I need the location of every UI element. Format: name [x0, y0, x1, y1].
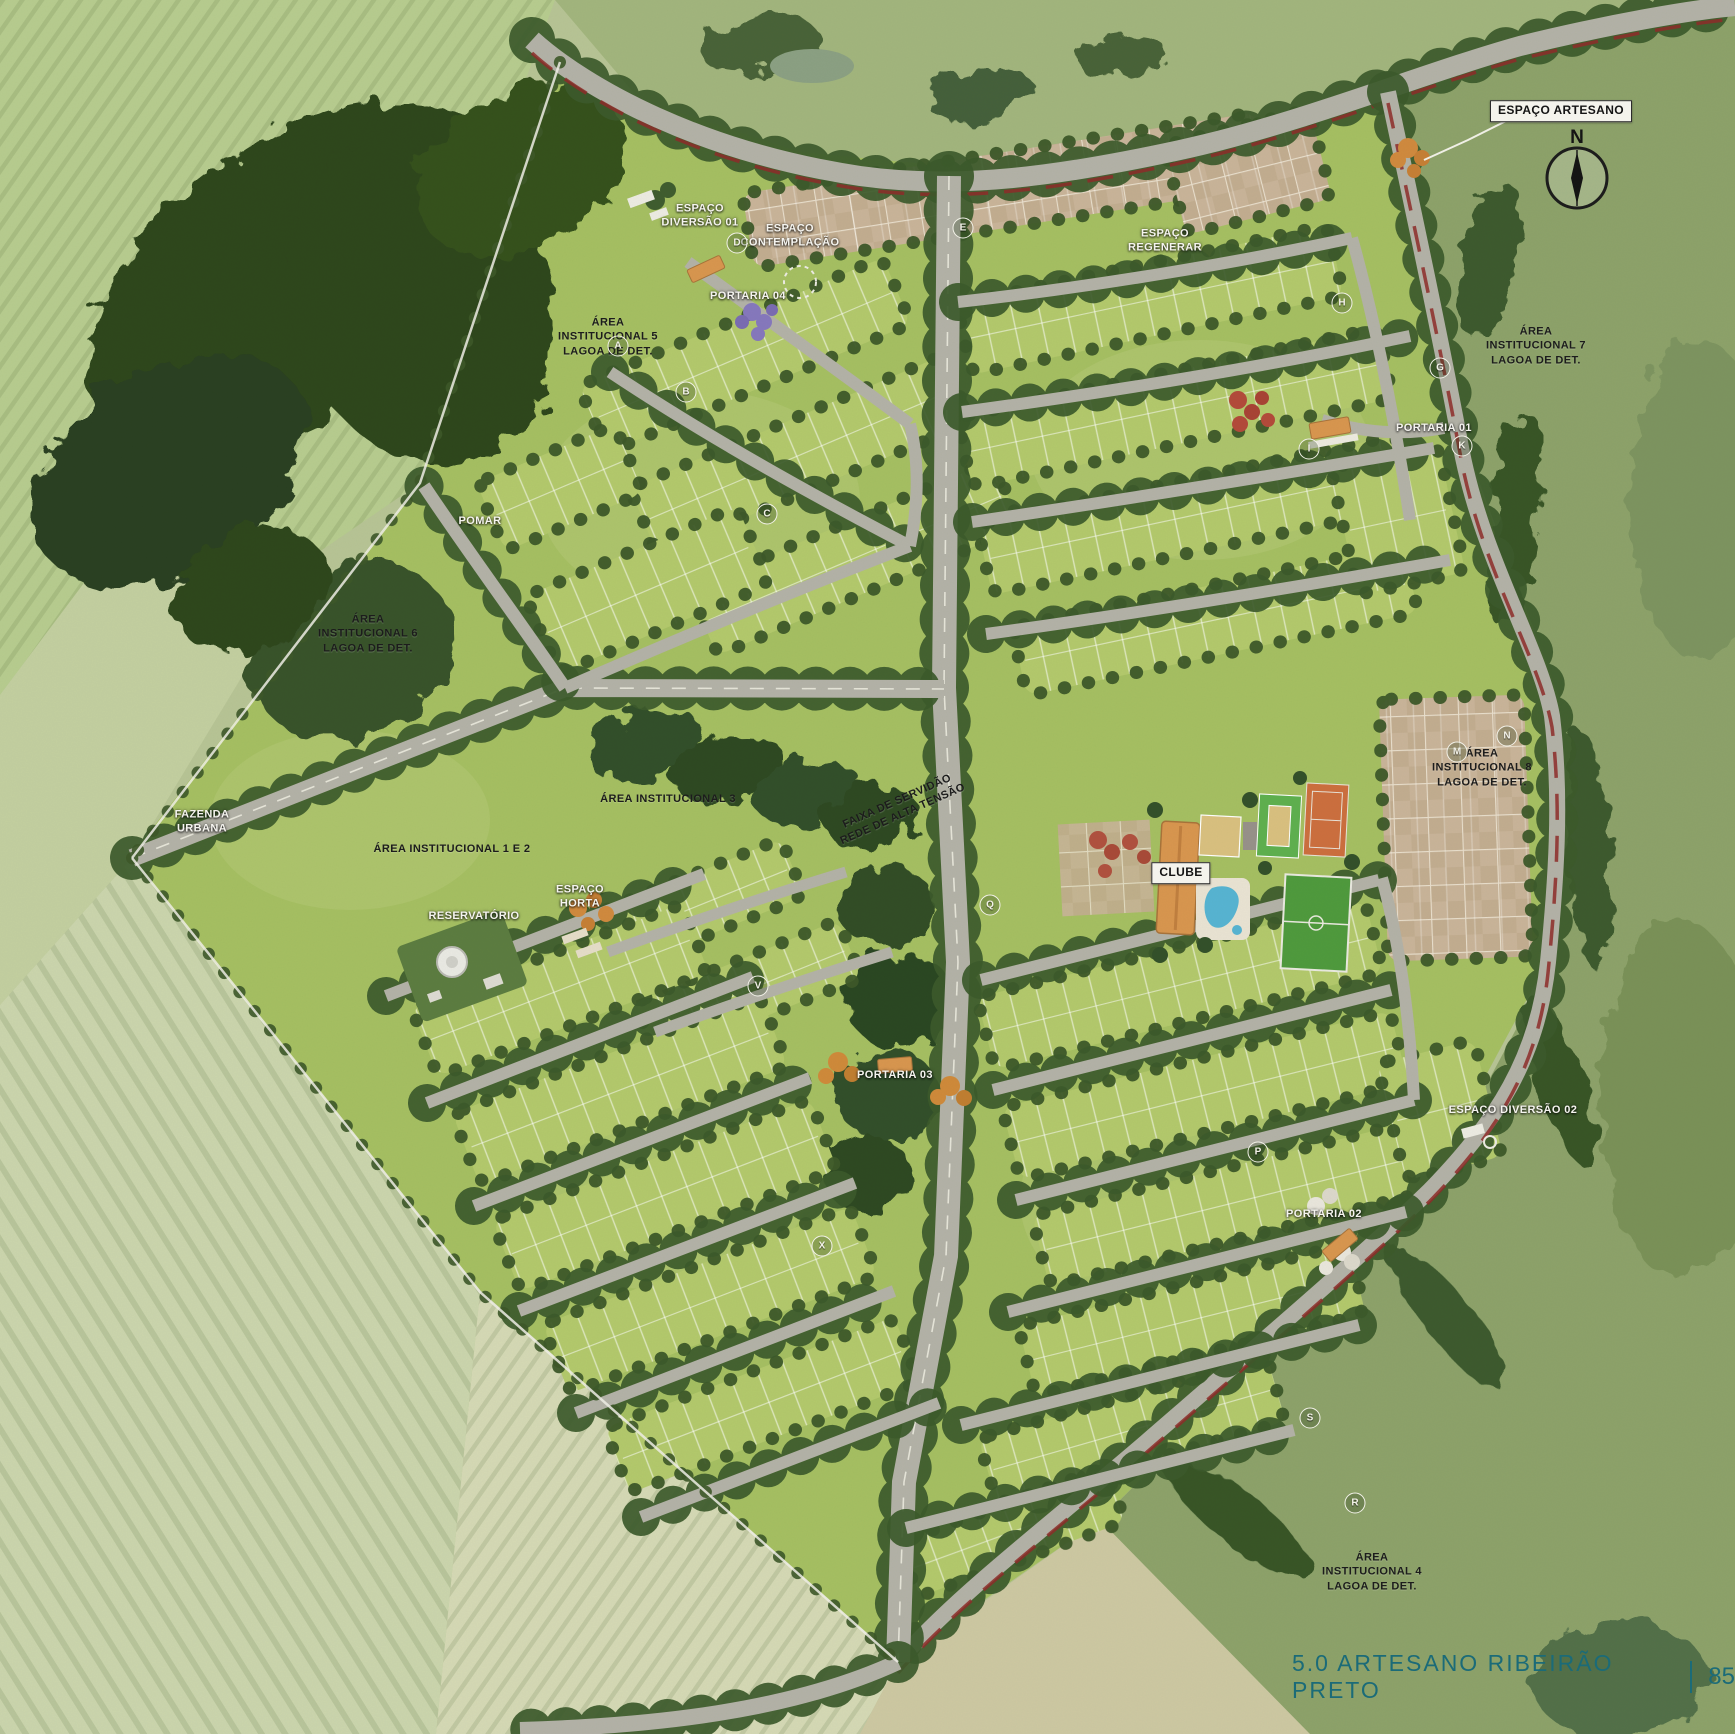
footer-caption: 5.0 ARTESANO RIBEIRÃO PRETO — [1292, 1650, 1674, 1704]
footer-divider — [1690, 1661, 1692, 1693]
photo-grain-overlay — [0, 0, 1735, 1734]
footer-page-number: 85 — [1708, 1663, 1735, 1691]
site-plan-map: N — [0, 0, 1735, 1734]
page-footer: 5.0 ARTESANO RIBEIRÃO PRETO 85 — [1292, 1650, 1735, 1704]
master-plan-page: N ESPAÇO ARTESANOESPAÇO DIVERSÃO 01ESPAÇ… — [0, 0, 1735, 1734]
